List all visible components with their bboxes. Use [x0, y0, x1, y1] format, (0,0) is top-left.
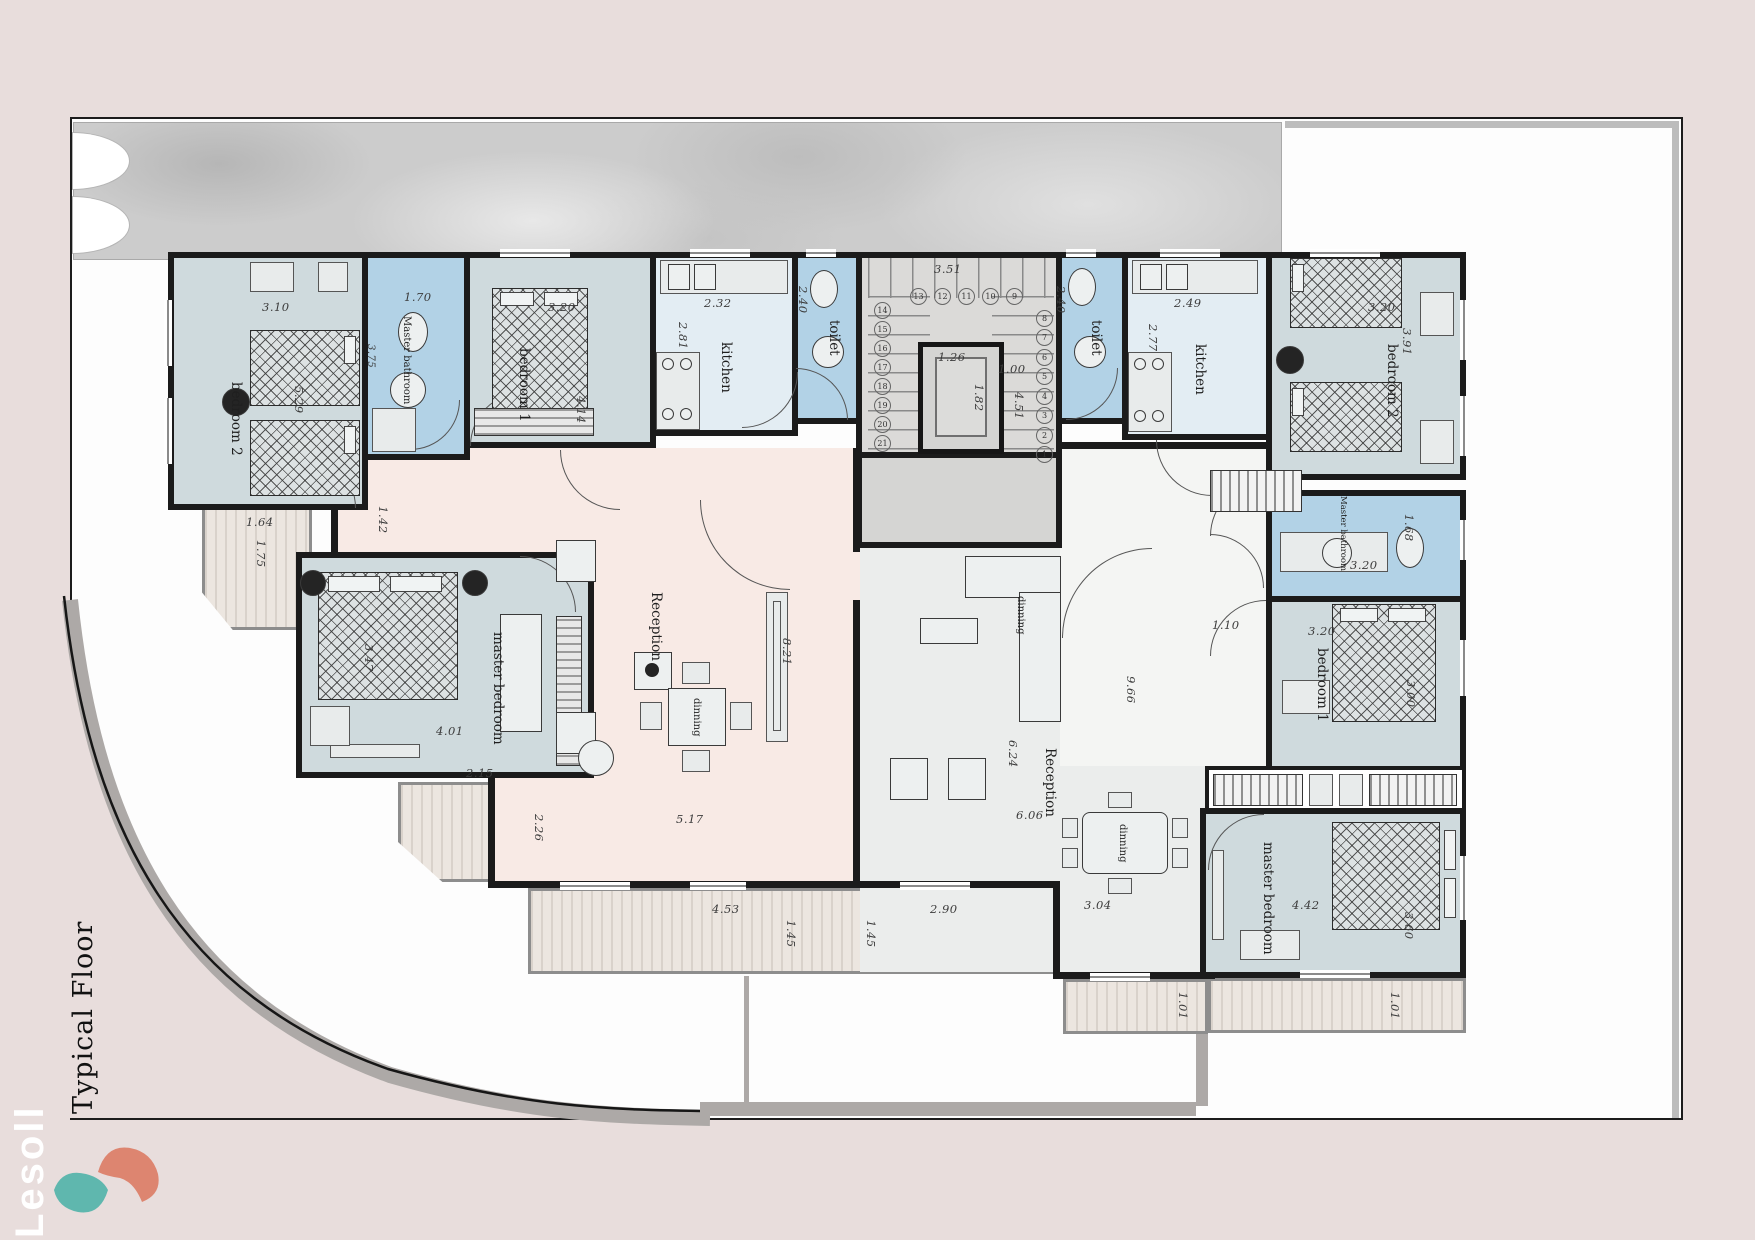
- page-title: Typical Floor: [68, 921, 99, 1114]
- closet-shirt: [1309, 774, 1333, 806]
- armchair: [948, 758, 986, 800]
- window: [690, 882, 746, 890]
- label-left-bedroom1: bedroom 1: [516, 348, 532, 422]
- window: [1066, 249, 1096, 257]
- dresser: [318, 262, 348, 292]
- dresser: [1420, 420, 1454, 464]
- chair: [1172, 818, 1188, 838]
- dim: 1.01: [1388, 992, 1402, 1020]
- dim: 1.70: [404, 290, 432, 304]
- entry-bay: [856, 452, 1062, 548]
- window: [164, 398, 172, 464]
- chair: [1062, 848, 1078, 868]
- kitchen-sink: [1166, 264, 1188, 290]
- coffee-table: [920, 618, 978, 644]
- toilet: [1068, 268, 1096, 306]
- dim: 2.40: [796, 286, 810, 314]
- balcony-left-bottom: [528, 888, 868, 974]
- bench: [330, 744, 420, 758]
- armchair: [556, 540, 596, 582]
- wall: [488, 881, 873, 888]
- label-left-kitchen: kitchen: [718, 342, 734, 393]
- pillow: [1444, 878, 1456, 918]
- label-right-kitchen: kitchen: [1192, 344, 1208, 395]
- dim: 2.77: [1146, 324, 1160, 352]
- dim: 3.04: [1084, 898, 1112, 912]
- label-right-dinning2: dinning: [1015, 596, 1026, 635]
- label-left-master-bathroom: Master bathroom: [401, 316, 412, 404]
- chair: [682, 662, 710, 684]
- burner: [662, 408, 674, 420]
- dim: 3.00: [1404, 680, 1418, 708]
- window: [1090, 973, 1150, 981]
- dresser: [1420, 292, 1454, 336]
- dim: 1.68: [1402, 514, 1416, 542]
- dim: 1.82: [972, 384, 986, 412]
- tv: [773, 601, 781, 731]
- closet-band: [1205, 766, 1466, 814]
- chair: [1108, 792, 1132, 808]
- lesoll-logo-icon: [36, 1128, 176, 1240]
- window: [1460, 396, 1468, 456]
- dim: 2.90: [930, 902, 958, 916]
- closet-shirt: [1339, 774, 1363, 806]
- pillow: [1340, 608, 1378, 622]
- pillow: [1444, 830, 1456, 870]
- burner: [662, 358, 674, 370]
- dim: 1.45: [864, 920, 878, 948]
- window: [1460, 300, 1468, 360]
- balcony-master-right: [1208, 978, 1466, 1033]
- dim: 6.06: [1016, 808, 1044, 822]
- window: [1460, 640, 1468, 696]
- dim: 3.10: [262, 300, 290, 314]
- side-table: [300, 570, 326, 596]
- closet-hangers: [1213, 774, 1303, 806]
- table-decor: [645, 663, 659, 677]
- label-left-toilet: toilet: [826, 320, 842, 356]
- dim: 1.42: [376, 506, 390, 534]
- dim: 1.64: [246, 515, 274, 529]
- dim: 3.91: [1400, 328, 1414, 356]
- toilet: [810, 270, 838, 308]
- dim: 1.01: [1176, 992, 1190, 1020]
- closet-hangers: [1369, 774, 1457, 806]
- armchair: [890, 758, 928, 800]
- dim: 3.20: [548, 300, 576, 314]
- dim: 4.01: [436, 724, 464, 738]
- chair: [682, 750, 710, 772]
- window: [690, 249, 750, 257]
- dim: 4.51: [1012, 392, 1026, 420]
- round-table: [578, 740, 614, 776]
- kitchen-sink: [694, 264, 716, 290]
- dim: 1.75: [254, 540, 268, 568]
- chair: [730, 702, 752, 730]
- tv-console: [766, 592, 788, 742]
- wall: [1053, 884, 1060, 979]
- window: [560, 882, 630, 890]
- window: [500, 249, 570, 257]
- dim: 3.60: [1402, 912, 1416, 940]
- window: [1310, 249, 1380, 257]
- window: [806, 249, 836, 257]
- pillow: [344, 426, 356, 454]
- stair-flight-top: [868, 258, 1056, 298]
- pillow: [1388, 608, 1426, 622]
- window: [900, 882, 970, 890]
- dim: 3.20: [1368, 300, 1396, 314]
- dim: 3.20: [1308, 624, 1336, 638]
- label-left-dinning: dinning: [691, 698, 702, 737]
- label-right-master-bedroom: master bedroom: [1260, 842, 1276, 955]
- burner: [1134, 358, 1146, 370]
- chair: [640, 702, 662, 730]
- dim: 9.66: [1124, 676, 1138, 704]
- pillow: [390, 576, 442, 592]
- dim: 2.49: [1174, 296, 1202, 310]
- dim: 2.15: [466, 766, 494, 780]
- dim: 3.75: [365, 344, 376, 368]
- label-right-master-bathroom: Master bathroom: [1338, 496, 1348, 571]
- burner: [680, 408, 692, 420]
- label-left-reception: Reception: [648, 592, 664, 661]
- window: [1160, 249, 1220, 257]
- side-table: [462, 570, 488, 596]
- dim: 2.81: [676, 322, 690, 350]
- floor-plan-canvas: 123456789101112131415161718192021: [0, 0, 1755, 1240]
- shower: [372, 408, 416, 452]
- chair: [1108, 878, 1132, 894]
- dim: 6.24: [1006, 740, 1020, 768]
- label-right-bedroom1: bedroom 1: [1314, 648, 1330, 722]
- dim: 5.17: [676, 812, 704, 826]
- pouf: [310, 706, 350, 746]
- burner: [1134, 410, 1146, 422]
- window: [1460, 520, 1468, 560]
- bed: [1290, 258, 1402, 328]
- dim: 2.26: [532, 814, 546, 842]
- label-left-bedroom2: bedroom 2: [228, 382, 244, 456]
- pillow: [500, 292, 534, 306]
- kitchen-sink: [1140, 264, 1162, 290]
- burner: [1152, 358, 1164, 370]
- dim: 1.26: [938, 350, 966, 364]
- dim: 4.53: [712, 902, 740, 916]
- pillow: [1292, 264, 1304, 292]
- dim: 4.42: [1292, 898, 1320, 912]
- bed: [1332, 822, 1440, 930]
- dim: 3.20: [1350, 558, 1378, 572]
- burner: [1152, 410, 1164, 422]
- label-left-master-bedroom: master bedroom: [490, 632, 506, 745]
- hall-closet: [1210, 470, 1302, 512]
- dresser: [250, 262, 294, 292]
- label-right-toilet: toilet: [1088, 320, 1104, 356]
- wall: [853, 600, 860, 888]
- dim: 4.14: [574, 396, 588, 424]
- kitchen-sink: [668, 264, 690, 290]
- window: [1300, 970, 1370, 978]
- dim: 1.10: [1212, 618, 1240, 632]
- dim: 1.45: [784, 920, 798, 948]
- dim: 3.51: [934, 262, 962, 276]
- dim: 1.00: [998, 362, 1026, 376]
- label-right-bedroom2: bedroom 2: [1384, 344, 1400, 418]
- window: [1460, 856, 1468, 920]
- chair: [1062, 818, 1078, 838]
- dim: 2.32: [704, 296, 732, 310]
- sofa: [500, 614, 542, 732]
- burner: [680, 358, 692, 370]
- dim: 5.29: [292, 386, 306, 414]
- pillow: [1292, 388, 1304, 416]
- window: [164, 300, 172, 366]
- label-right-dinning: dinning: [1117, 824, 1128, 863]
- chair: [1172, 848, 1188, 868]
- pillow: [344, 336, 356, 364]
- dim: 2.40: [1054, 286, 1068, 314]
- label-right-reception: Reception: [1042, 748, 1058, 817]
- dim: 3.47: [362, 644, 376, 672]
- dim: 8.21: [780, 638, 794, 666]
- pillow: [328, 576, 380, 592]
- side-table: [1276, 346, 1304, 374]
- tv-console: [1212, 850, 1224, 940]
